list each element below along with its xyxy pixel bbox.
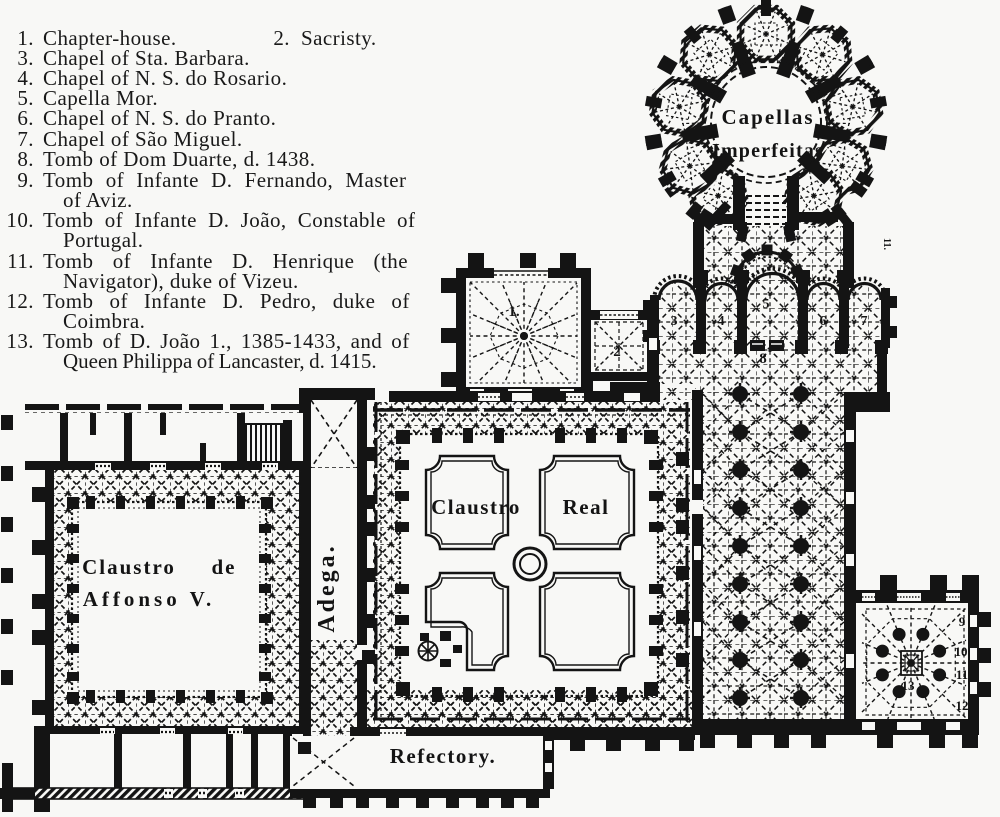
svg-text:2.: 2. (273, 26, 290, 50)
svg-text:11.: 11. (7, 249, 34, 273)
svg-text:10: 10 (955, 644, 968, 659)
svg-text:de: de (212, 555, 237, 579)
svg-text:3: 3 (671, 314, 678, 329)
svg-text:9: 9 (959, 614, 966, 629)
svg-text:Refectory.: Refectory. (390, 744, 497, 768)
svg-text:Real: Real (563, 495, 610, 519)
svg-text:6: 6 (820, 314, 827, 329)
svg-text:11: 11 (956, 667, 968, 682)
svg-text:Capellas: Capellas (721, 105, 814, 129)
svg-text:Adega.: Adega. (314, 543, 340, 632)
svg-text:Imperfeitas: Imperfeitas (712, 140, 824, 162)
svg-text:5: 5 (763, 297, 770, 312)
svg-text:Sacristy.: Sacristy. (301, 26, 377, 50)
svg-text:7: 7 (861, 314, 868, 329)
svg-text:12.: 12. (6, 289, 34, 313)
svg-text:9.: 9. (17, 168, 34, 192)
svg-text:8: 8 (759, 351, 767, 367)
svg-text:11.: 11. (881, 238, 892, 250)
svg-text:4: 4 (718, 314, 725, 329)
svg-text:12: 12 (956, 698, 969, 713)
svg-text:13: 13 (902, 678, 916, 693)
svg-text:13.: 13. (6, 329, 34, 353)
svg-text:Affonso V.: Affonso V. (83, 587, 216, 611)
svg-text:Queen Philippa of Lancaster, d: Queen Philippa of Lancaster, d. 1415. (63, 349, 377, 373)
svg-text:2: 2 (613, 344, 621, 360)
svg-text:Claustro: Claustro (431, 495, 521, 519)
svg-text:10.: 10. (6, 208, 34, 232)
svg-text:1.: 1. (508, 304, 520, 320)
svg-text:Claustro: Claustro (82, 555, 176, 579)
